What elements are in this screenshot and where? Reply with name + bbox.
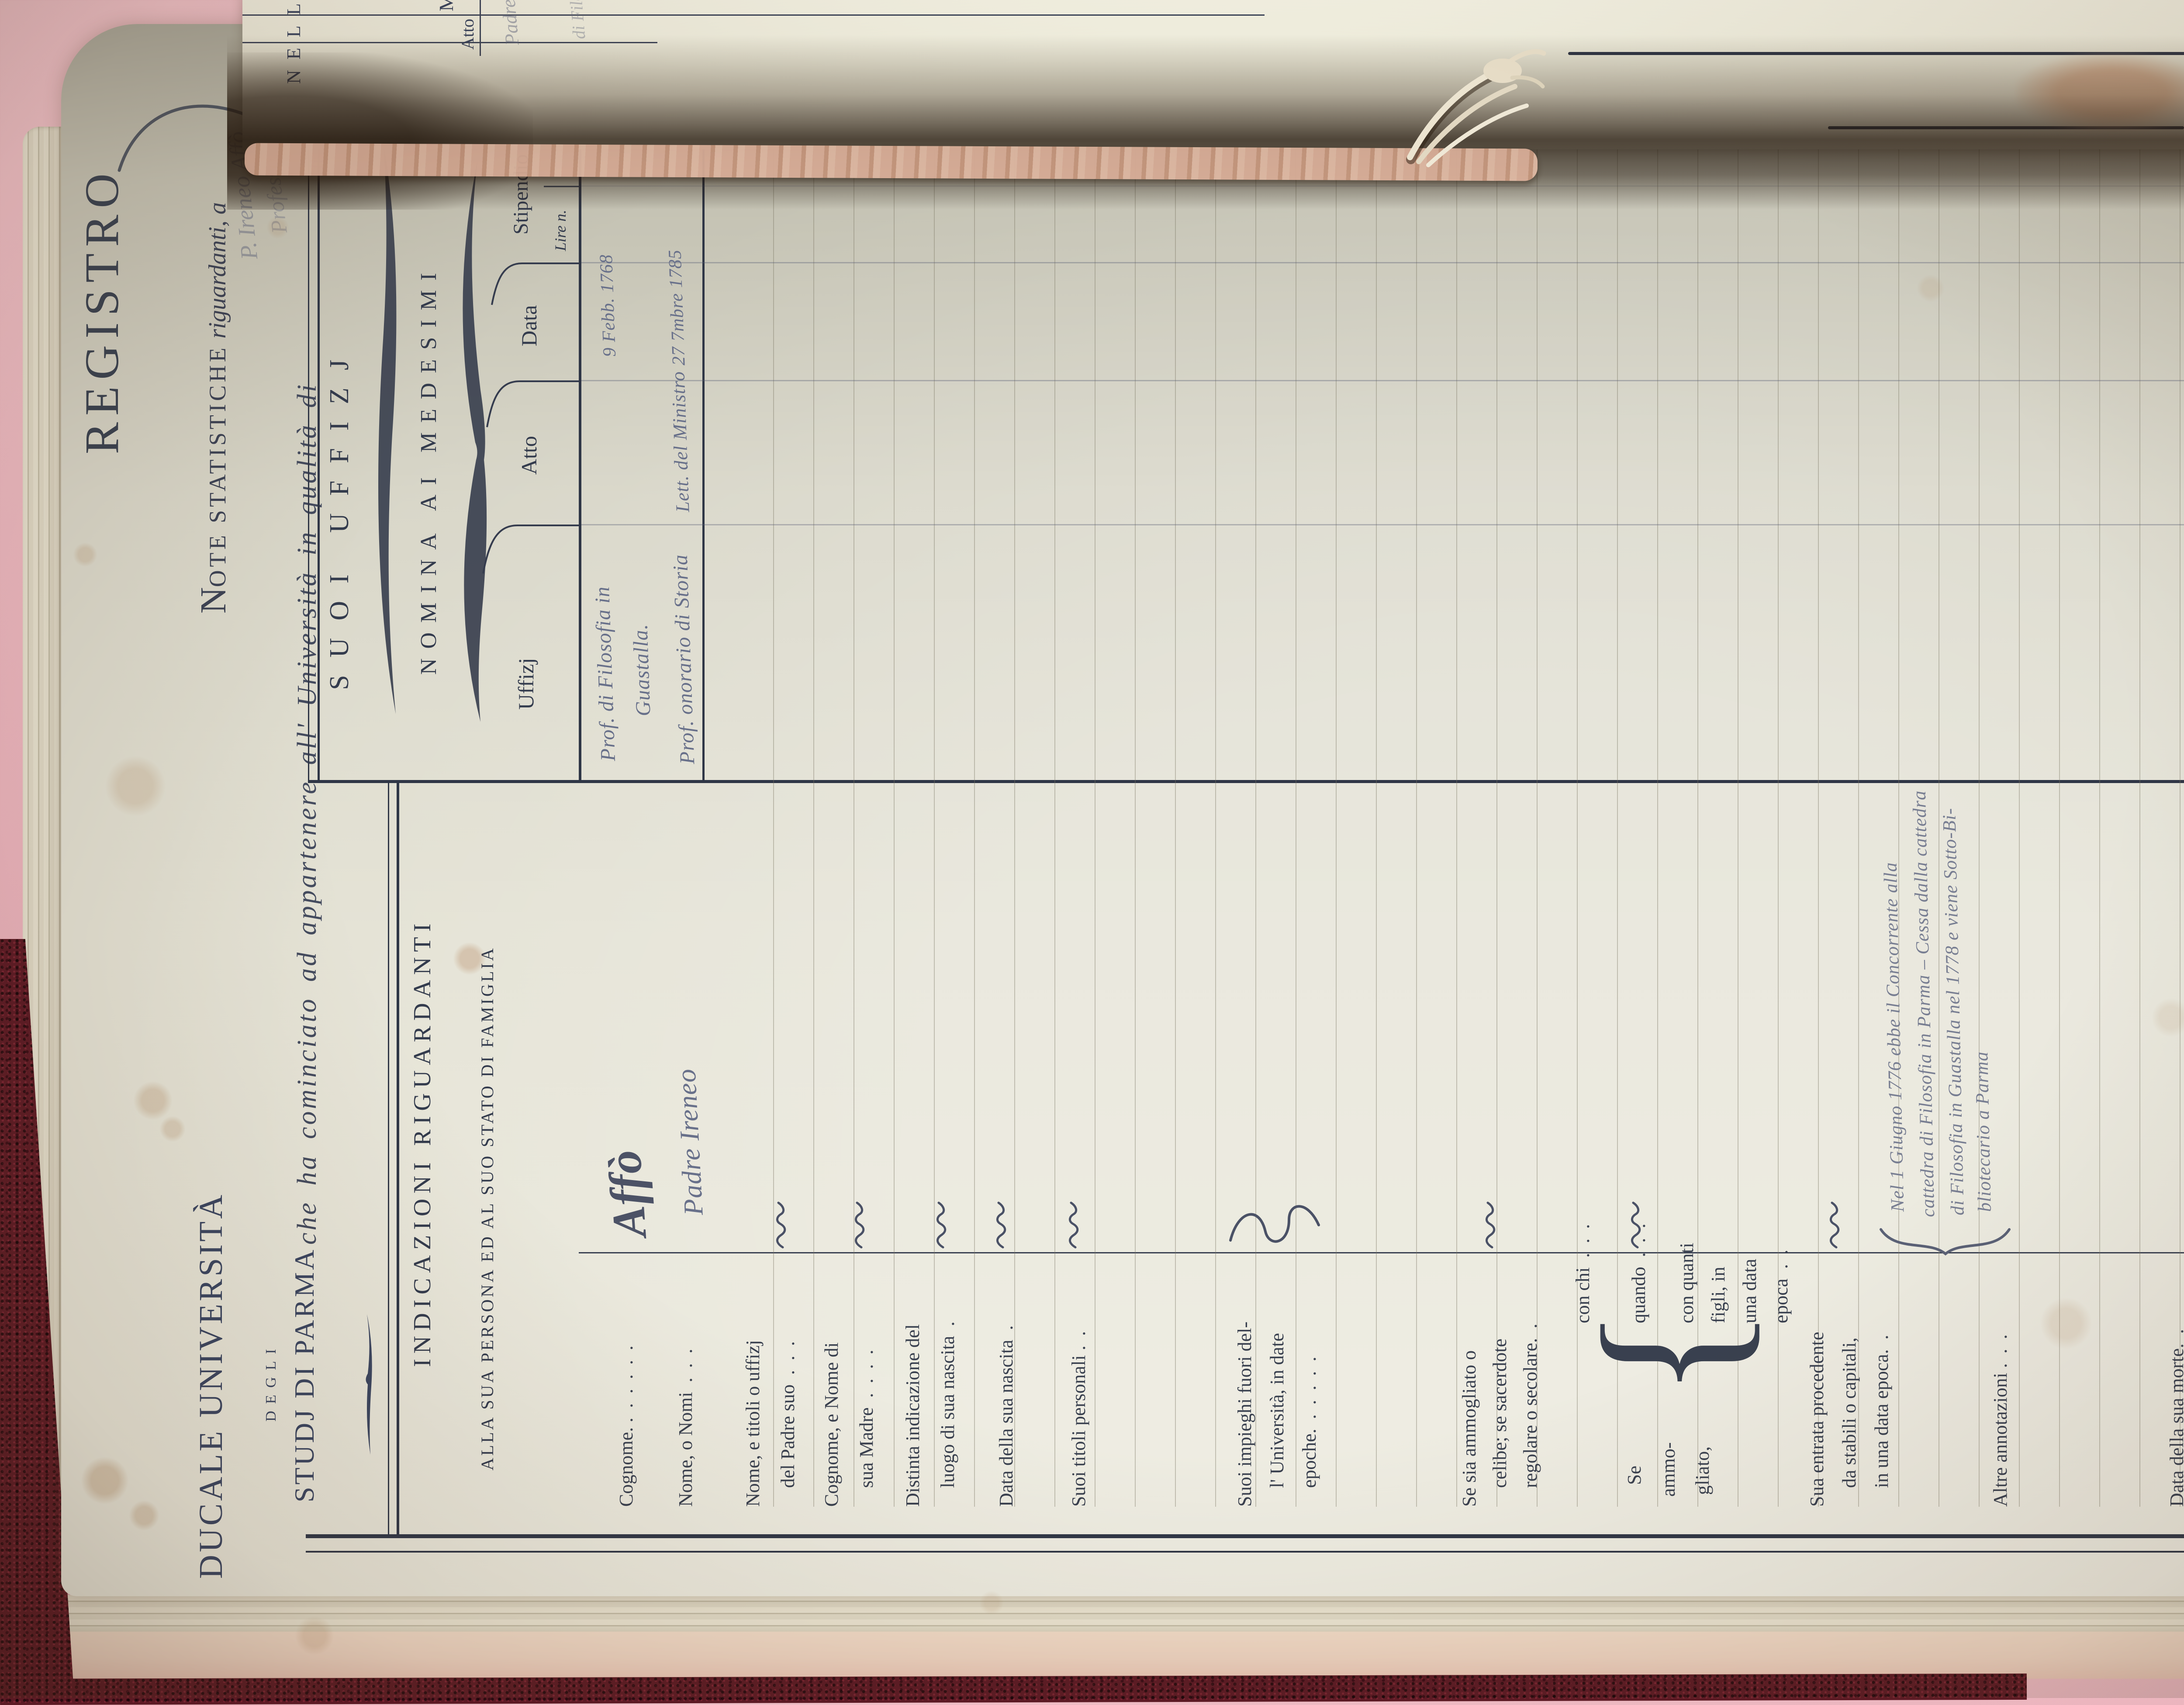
photo-vignette [0, 0, 2184, 1698]
photo-of-register-book: { "header": { "registro": "REGISTRO", "n… [0, 0, 2184, 1698]
